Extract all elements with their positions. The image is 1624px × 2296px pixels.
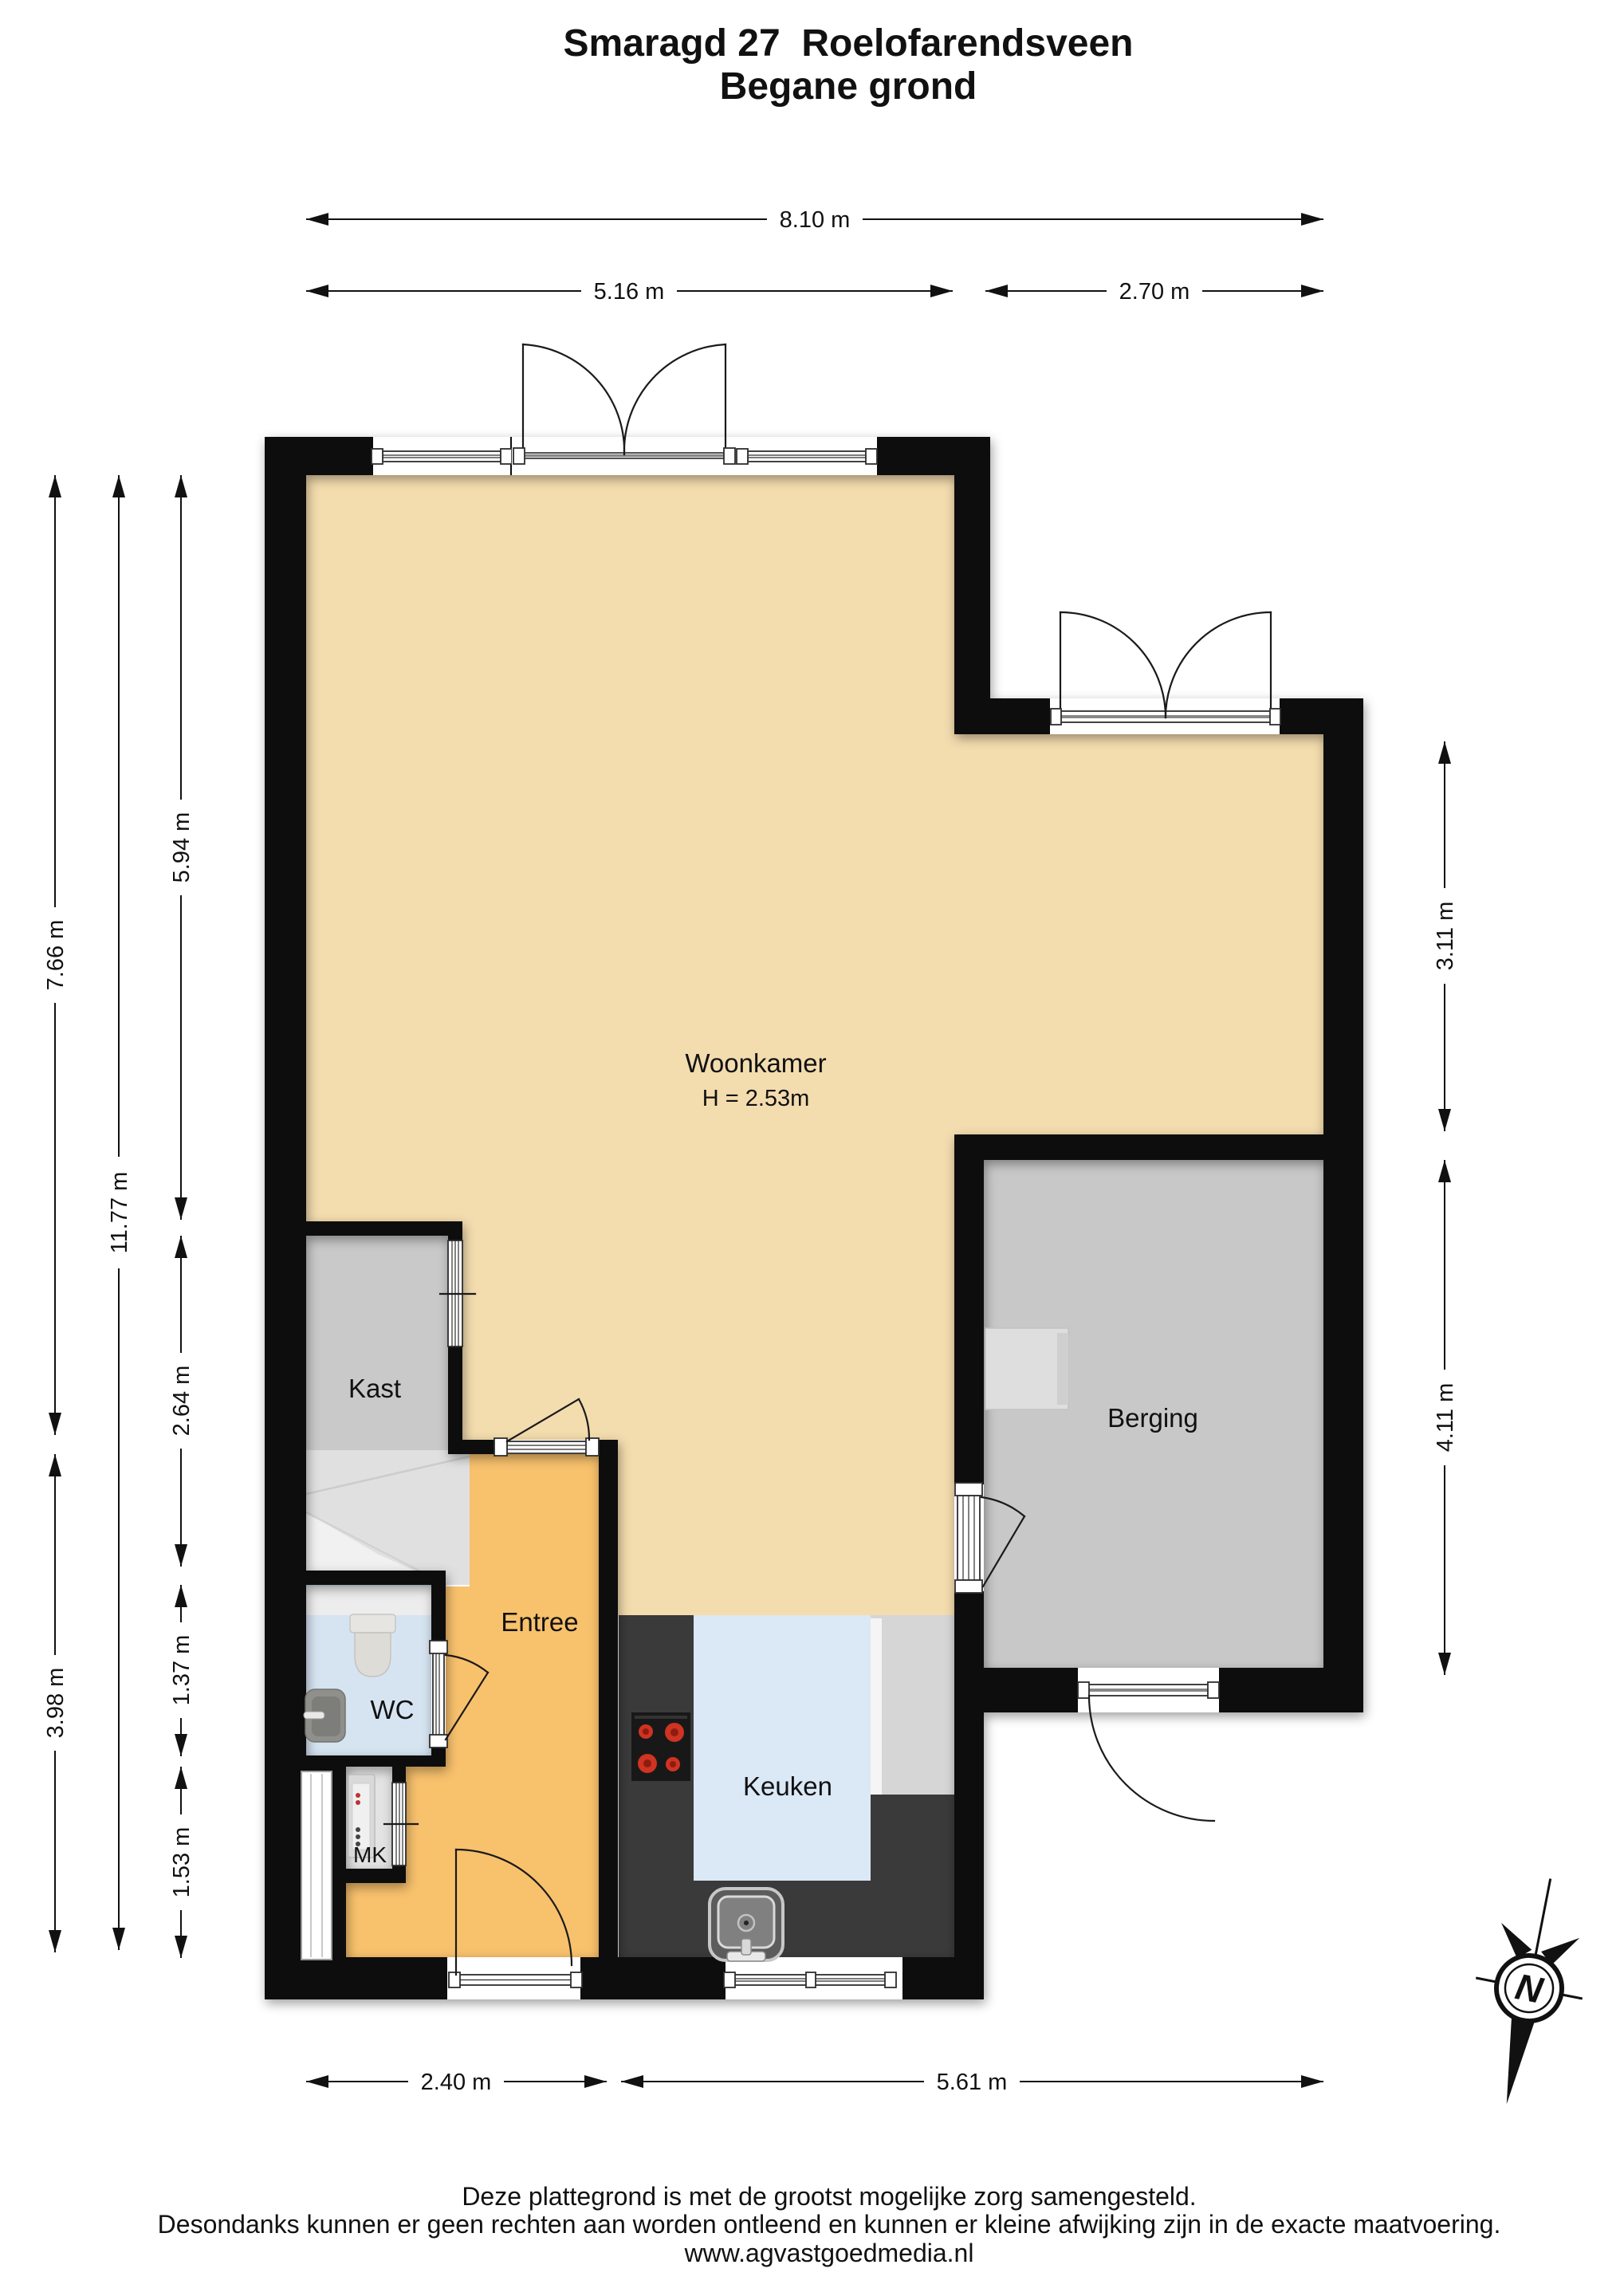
svg-text:MK: MK [353,1842,387,1867]
svg-text:3.98 m: 3.98 m [43,1668,69,1739]
svg-text:1.53 m: 1.53 m [169,1827,195,1898]
svg-text:2.64 m: 2.64 m [169,1366,195,1437]
svg-text:WC: WC [371,1695,415,1724]
svg-text:5.16 m: 5.16 m [594,279,665,305]
svg-text:Begane grond: Begane grond [720,65,977,108]
svg-text:5.61 m: 5.61 m [937,2070,1008,2095]
svg-text:Woonkamer: Woonkamer [685,1048,826,1078]
svg-text:1.37 m: 1.37 m [169,1635,195,1706]
svg-text:Kast: Kast [348,1374,401,1403]
svg-text:2.40 m: 2.40 m [421,2070,492,2095]
svg-text:7.66 m: 7.66 m [43,920,69,991]
svg-text:Entree: Entree [501,1607,578,1637]
svg-text:Keuken: Keuken [743,1771,832,1801]
svg-text:H = 2.53m: H = 2.53m [702,1086,810,1111]
svg-text:4.11 m: 4.11 m [1433,1383,1458,1453]
svg-text:5.94 m: 5.94 m [169,812,195,883]
svg-text:www.agvastgoedmedia.nl: www.agvastgoedmedia.nl [684,2239,974,2267]
svg-text:11.77 m: 11.77 m [107,1172,132,1254]
svg-text:Berging: Berging [1107,1403,1198,1433]
svg-text:Desondanks kunnen er geen rech: Desondanks kunnen er geen rechten aan wo… [158,2210,1501,2239]
svg-text:Smaragd 27 Roelofarendsveen: Smaragd 27 Roelofarendsveen [564,22,1134,65]
svg-text:2.70 m: 2.70 m [1119,279,1190,305]
svg-text:8.10 m: 8.10 m [780,207,851,233]
svg-text:Deze plattegrond is met de gro: Deze plattegrond is met de grootst mogel… [462,2182,1196,2211]
svg-text:3.11 m: 3.11 m [1433,902,1458,971]
